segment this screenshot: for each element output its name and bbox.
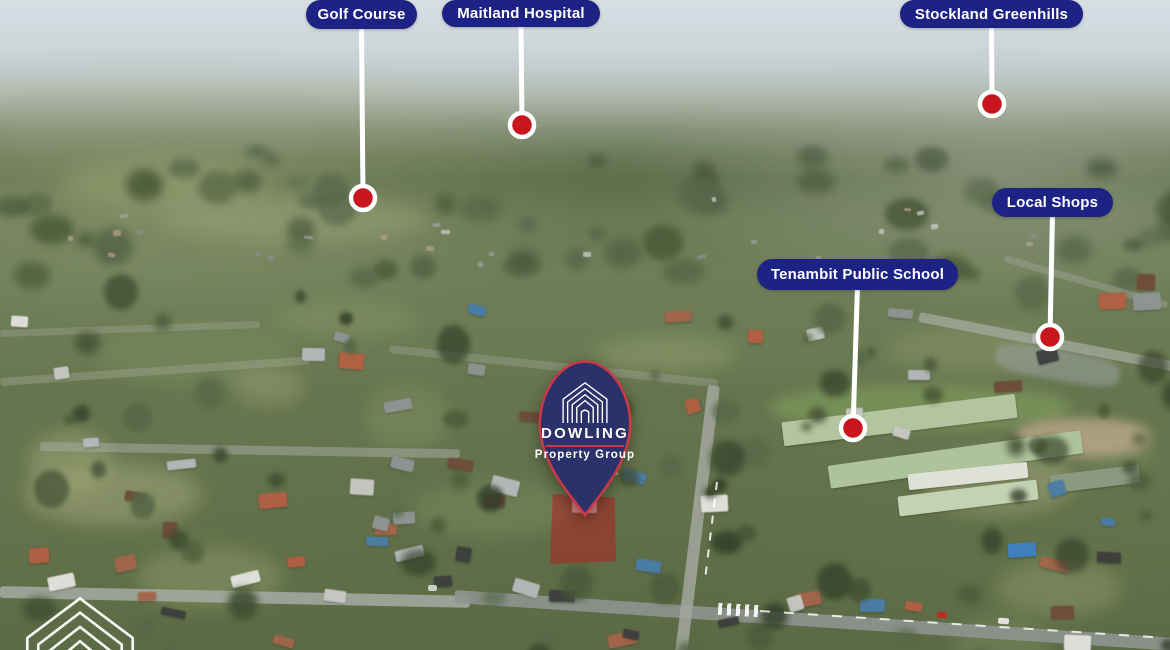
location-pill-golf-course: Golf Course bbox=[306, 0, 417, 29]
dowling-property-pin: DOWLING Property Group bbox=[533, 356, 637, 520]
connector-line-golf-course bbox=[362, 25, 364, 198]
location-dot-tenambit-public-school bbox=[841, 416, 865, 440]
dowling-watermark-logo-icon bbox=[14, 594, 146, 650]
brand-underline bbox=[546, 445, 624, 447]
location-dot-golf-course bbox=[351, 186, 375, 210]
location-pill-stockland-greenhills: Stockland Greenhills bbox=[900, 0, 1083, 28]
location-pill-label: Stockland Greenhills bbox=[915, 6, 1068, 23]
connector-line-maitland-hospital bbox=[521, 23, 522, 125]
location-pill-label: Local Shops bbox=[1007, 194, 1098, 211]
connector-line-tenambit-public-school bbox=[853, 286, 858, 428]
location-pill-maitland-hospital: Maitland Hospital bbox=[442, 0, 600, 27]
location-dot-stockland-greenhills bbox=[980, 92, 1004, 116]
brand-name: DOWLING bbox=[533, 425, 637, 442]
location-dot-maitland-hospital bbox=[510, 113, 534, 137]
location-dot-local-shops bbox=[1038, 325, 1062, 349]
brand-tagline: Property Group bbox=[533, 449, 637, 461]
aerial-location-map: Golf CourseMaitland HospitalStockland Gr… bbox=[0, 0, 1170, 650]
location-pill-label: Maitland Hospital bbox=[457, 5, 585, 22]
pin-content: DOWLING Property Group bbox=[533, 356, 637, 461]
marker-overlay bbox=[0, 0, 1170, 650]
connector-line-local-shops bbox=[1050, 213, 1053, 337]
location-pill-tenambit-public-school: Tenambit Public School bbox=[757, 259, 958, 290]
location-pill-label: Tenambit Public School bbox=[771, 266, 944, 283]
location-pill-local-shops: Local Shops bbox=[992, 188, 1113, 217]
location-pill-label: Golf Course bbox=[317, 6, 405, 23]
dowling-house-logo-icon bbox=[557, 381, 613, 423]
